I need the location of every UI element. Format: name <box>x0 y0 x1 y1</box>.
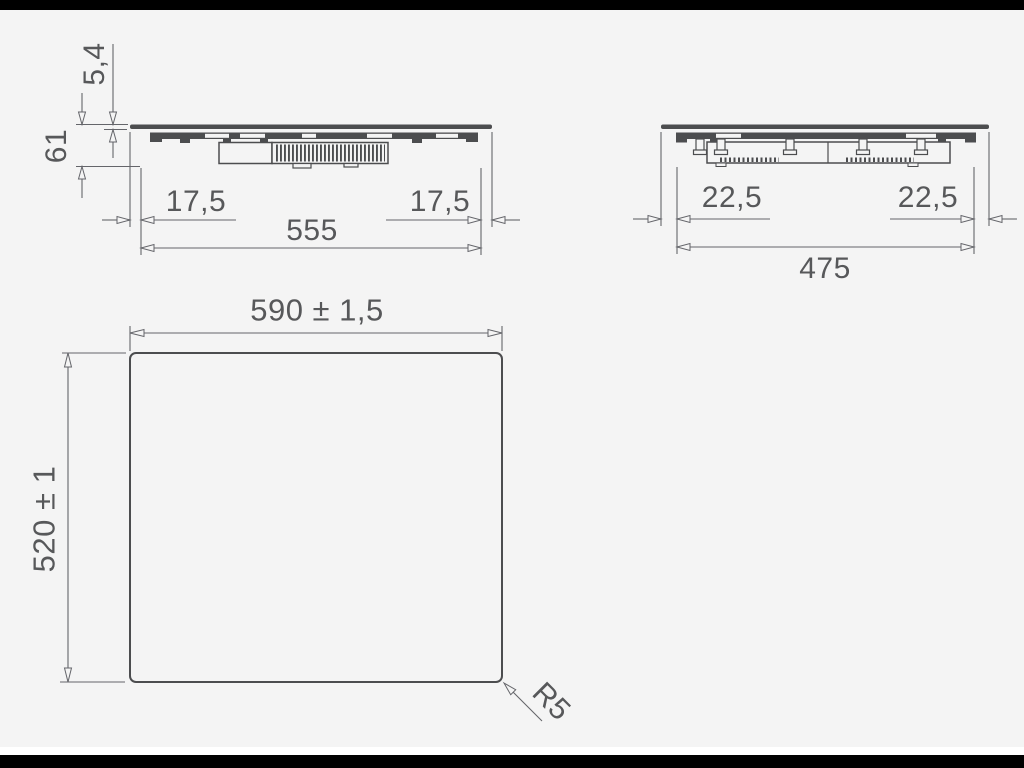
top-view-outline <box>130 353 502 682</box>
side-body-depth-label: 475 <box>799 254 851 284</box>
front-side-view <box>130 125 492 169</box>
front-right-overhang-label: 17,5 <box>410 187 470 217</box>
front-total-height-label: 61 <box>42 129 72 163</box>
top-view-depth-label: 520 ± 1 <box>29 466 60 573</box>
front-electronics-box <box>219 143 272 164</box>
front-left-overhang-label: 17,5 <box>166 187 226 217</box>
front-glass-profile <box>130 125 492 130</box>
side-glass-profile <box>661 125 989 130</box>
front-glass-thickness-label: 5,4 <box>80 42 110 85</box>
top-view <box>60 326 542 721</box>
side-left-overhang-label: 22,5 <box>702 183 762 213</box>
top-view-dimensions <box>60 326 542 721</box>
side-depth-view <box>661 125 989 167</box>
cooktop-dimension-drawing <box>0 0 1024 768</box>
front-body-width-label: 555 <box>286 216 338 246</box>
side-right-overhang-label: 22,5 <box>898 183 958 213</box>
top-view-width-label: 590 ± 1,5 <box>250 295 384 326</box>
technical-drawing-page: { "drawing": { "front_view": { "glass_th… <box>0 0 1024 768</box>
